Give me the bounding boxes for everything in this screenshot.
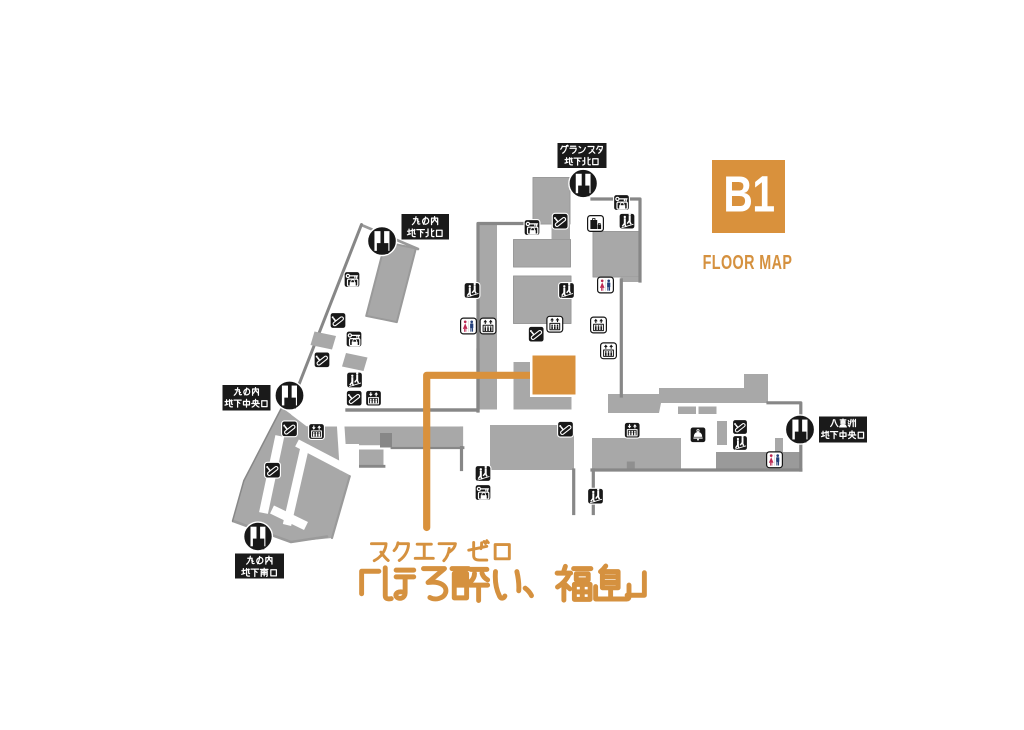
svg-text:B1: B1 — [723, 165, 774, 222]
svg-text:FLOOR MAP: FLOOR MAP — [703, 250, 793, 273]
